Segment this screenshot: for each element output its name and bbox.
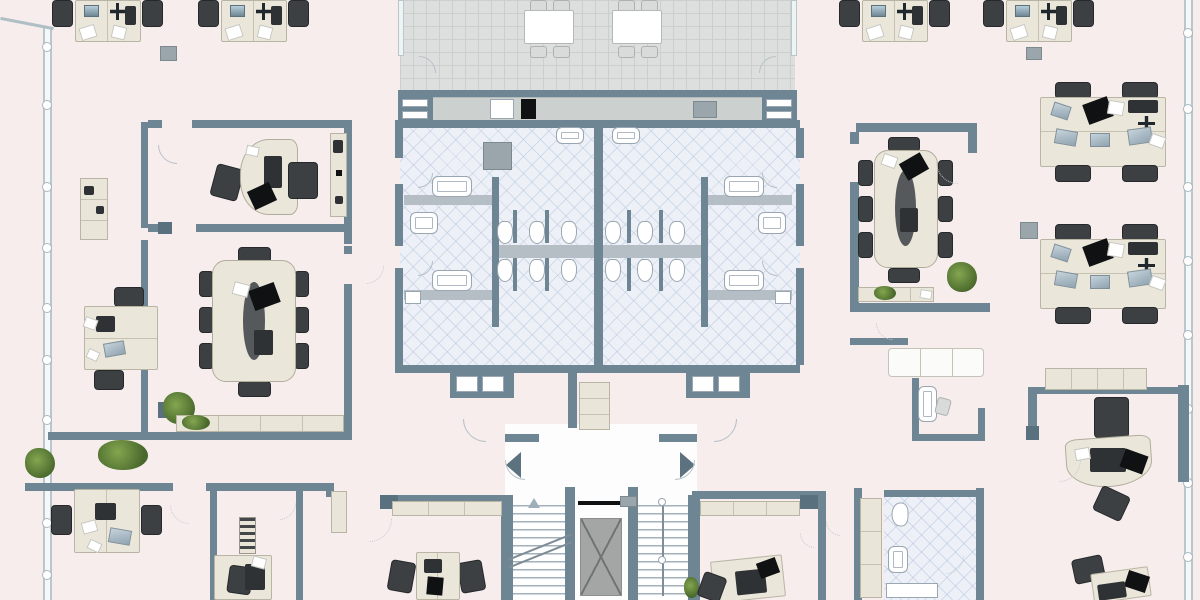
window-joint bbox=[42, 415, 52, 425]
wall bbox=[1028, 394, 1037, 428]
black-laptop bbox=[336, 170, 342, 176]
furniture-seam bbox=[260, 416, 261, 431]
black-laptop bbox=[521, 99, 536, 119]
desk-monitor bbox=[1056, 6, 1067, 25]
office-chair bbox=[294, 271, 309, 297]
stool bbox=[483, 142, 512, 170]
office-chair bbox=[888, 268, 920, 283]
service-duct bbox=[490, 99, 514, 119]
furniture-seam bbox=[920, 349, 921, 376]
wall bbox=[850, 132, 859, 144]
wall bbox=[344, 246, 352, 254]
laptop bbox=[1090, 133, 1110, 147]
break-table bbox=[612, 10, 662, 44]
sink bbox=[758, 212, 786, 234]
furniture-seam bbox=[464, 502, 465, 515]
office-floor-plan bbox=[0, 0, 1200, 600]
furniture-seam bbox=[733, 502, 734, 515]
papers bbox=[1107, 242, 1125, 259]
desk-monitor bbox=[1128, 100, 1158, 113]
toilet bbox=[637, 259, 653, 282]
window-joint bbox=[1183, 28, 1193, 38]
break-room-floor bbox=[400, 0, 795, 92]
side-chair bbox=[641, 46, 658, 58]
potted-plant bbox=[947, 262, 977, 292]
wall bbox=[796, 128, 804, 158]
sink bbox=[724, 270, 764, 291]
window-joint bbox=[1183, 182, 1193, 192]
office-chair bbox=[858, 160, 873, 186]
side-chair bbox=[553, 46, 570, 58]
service-duct bbox=[402, 111, 428, 119]
office-chair bbox=[858, 196, 873, 222]
office-chair bbox=[1055, 165, 1091, 182]
toilet bbox=[529, 259, 545, 282]
service-duct bbox=[482, 376, 504, 392]
wall bbox=[398, 90, 797, 97]
monitor bbox=[84, 5, 99, 17]
desk-monitor bbox=[1128, 242, 1158, 255]
window-joint bbox=[42, 100, 52, 110]
potted-plant bbox=[182, 415, 210, 430]
service-duct bbox=[886, 583, 938, 598]
wall bbox=[850, 303, 990, 312]
furniture-seam bbox=[85, 338, 157, 339]
toilet bbox=[605, 259, 621, 282]
office-chair bbox=[238, 381, 271, 397]
wall bbox=[513, 258, 517, 291]
desk-monitor bbox=[254, 330, 273, 355]
office-chair bbox=[294, 307, 309, 333]
wall bbox=[1178, 385, 1189, 482]
potted-plant bbox=[684, 577, 699, 598]
desk-monitor bbox=[125, 6, 136, 25]
wall bbox=[796, 184, 804, 246]
wall bbox=[196, 224, 348, 232]
wall bbox=[912, 434, 985, 441]
wall bbox=[148, 120, 162, 128]
office-chair bbox=[288, 0, 309, 27]
credenza bbox=[392, 501, 502, 516]
window-joint bbox=[1183, 256, 1193, 266]
wall bbox=[627, 210, 631, 243]
glazed-partition bbox=[398, 0, 404, 56]
wall bbox=[395, 120, 800, 128]
toilet bbox=[605, 221, 621, 244]
wall bbox=[395, 128, 403, 158]
toilet bbox=[669, 221, 685, 244]
furniture-seam bbox=[861, 564, 881, 565]
sink bbox=[556, 127, 584, 144]
wall bbox=[545, 258, 549, 291]
window-joint bbox=[1183, 330, 1193, 340]
desk-monitor bbox=[912, 6, 923, 25]
wall bbox=[48, 432, 352, 440]
furniture-seam bbox=[894, 1, 895, 41]
door-panel bbox=[158, 222, 172, 234]
office-chair bbox=[1092, 485, 1132, 523]
office-chair bbox=[1055, 307, 1091, 324]
furniture-seam bbox=[106, 490, 107, 552]
toilet bbox=[892, 503, 909, 527]
furniture-seam bbox=[766, 502, 767, 515]
credenza bbox=[860, 498, 882, 598]
office-chair bbox=[198, 0, 219, 27]
sink bbox=[612, 127, 640, 144]
window-joint bbox=[1183, 104, 1193, 114]
office-chair bbox=[1122, 307, 1158, 324]
potted-plant bbox=[98, 440, 148, 470]
wall bbox=[976, 488, 984, 600]
service-duct bbox=[766, 111, 792, 119]
furniture-seam bbox=[1123, 369, 1124, 389]
desk-monitor bbox=[271, 6, 282, 25]
service-duct bbox=[456, 376, 478, 392]
credenza bbox=[579, 382, 610, 430]
office-chair bbox=[938, 232, 953, 258]
office-chair bbox=[288, 162, 318, 199]
office-chair bbox=[938, 196, 953, 222]
stool bbox=[693, 101, 717, 118]
sink bbox=[724, 176, 764, 197]
desk-monitor bbox=[96, 206, 104, 214]
wall bbox=[513, 210, 517, 243]
wall bbox=[141, 122, 148, 228]
toilet bbox=[529, 221, 545, 244]
glazed-partition bbox=[791, 0, 797, 56]
wall bbox=[594, 128, 603, 373]
toilet bbox=[497, 221, 513, 244]
toilet bbox=[637, 221, 653, 244]
furniture-seam bbox=[81, 220, 107, 221]
wall bbox=[296, 491, 303, 600]
office-chair bbox=[839, 0, 860, 27]
sink bbox=[888, 546, 908, 573]
credenza bbox=[331, 491, 347, 533]
kitchen-counter bbox=[400, 97, 795, 121]
office-chair bbox=[983, 0, 1004, 27]
furniture-seam bbox=[861, 531, 881, 532]
wall bbox=[884, 490, 976, 497]
service-duct bbox=[775, 291, 791, 304]
plumbing-wall bbox=[602, 245, 702, 258]
office-chair bbox=[94, 370, 124, 390]
elevator-car bbox=[580, 518, 622, 596]
service-duct bbox=[405, 291, 421, 304]
side-chair bbox=[618, 46, 635, 58]
office-chair bbox=[929, 0, 950, 27]
toilet bbox=[497, 259, 513, 282]
office-chair bbox=[142, 0, 163, 27]
stool bbox=[160, 46, 177, 61]
desk-monitor bbox=[424, 559, 442, 573]
furniture-seam bbox=[1071, 369, 1072, 389]
office-chair bbox=[386, 559, 416, 594]
wall bbox=[395, 268, 403, 365]
desk-monitor bbox=[84, 186, 94, 195]
furniture-seam bbox=[253, 1, 254, 41]
window-wall bbox=[1184, 0, 1193, 600]
sink bbox=[410, 212, 438, 234]
furniture-seam bbox=[1038, 1, 1039, 41]
side-chair bbox=[934, 396, 952, 416]
black-laptop bbox=[578, 501, 622, 505]
desk-monitor bbox=[96, 316, 115, 332]
window-joint bbox=[42, 42, 52, 52]
service-duct bbox=[692, 376, 714, 392]
wall bbox=[344, 284, 352, 440]
wall bbox=[856, 123, 968, 132]
window-joint bbox=[42, 243, 52, 253]
furniture-seam bbox=[428, 502, 429, 515]
sink bbox=[432, 270, 472, 291]
plumbing-wall bbox=[494, 245, 594, 258]
furniture-seam bbox=[81, 199, 107, 200]
furniture-seam bbox=[107, 1, 108, 41]
office-chair bbox=[52, 0, 73, 27]
door-panel bbox=[1026, 426, 1039, 440]
desk-monitor bbox=[900, 208, 918, 232]
black-laptop bbox=[426, 576, 444, 595]
wall bbox=[492, 177, 499, 327]
furniture-seam bbox=[952, 349, 953, 376]
desk-monitor bbox=[333, 140, 343, 153]
shelf-unit bbox=[239, 517, 256, 554]
window-joint bbox=[1183, 552, 1193, 562]
wall bbox=[501, 495, 513, 600]
laptop bbox=[1090, 275, 1110, 289]
facade-line bbox=[0, 17, 54, 30]
furniture-seam bbox=[580, 398, 609, 399]
papers bbox=[1107, 100, 1125, 117]
toilet bbox=[669, 259, 685, 282]
window-joint bbox=[42, 570, 52, 580]
sink bbox=[918, 386, 937, 422]
door-panel bbox=[800, 495, 818, 509]
service-duct bbox=[402, 99, 428, 107]
break-table bbox=[524, 10, 574, 44]
monitor bbox=[1015, 5, 1030, 17]
toilet bbox=[561, 221, 577, 244]
wall bbox=[627, 258, 631, 291]
sink bbox=[432, 176, 472, 197]
wall bbox=[978, 408, 985, 441]
potted-plant bbox=[25, 448, 55, 478]
credenza bbox=[1045, 368, 1147, 390]
wall bbox=[568, 373, 577, 428]
stool bbox=[1020, 222, 1038, 239]
potted-plant bbox=[874, 286, 896, 300]
office-chair bbox=[114, 287, 144, 307]
office-chair bbox=[456, 559, 486, 594]
office-chair bbox=[1073, 0, 1094, 27]
furniture-seam bbox=[218, 416, 219, 431]
wall bbox=[701, 177, 708, 327]
wall bbox=[192, 120, 352, 128]
desk-monitor bbox=[335, 196, 343, 204]
monitor bbox=[871, 5, 886, 17]
papers bbox=[919, 289, 932, 300]
wall bbox=[796, 268, 804, 365]
window-joint bbox=[42, 182, 52, 192]
desk bbox=[74, 489, 140, 553]
furniture-seam bbox=[910, 288, 911, 301]
window-joint bbox=[42, 303, 52, 313]
furniture-seam bbox=[1097, 369, 1098, 389]
office-chair bbox=[1094, 397, 1129, 438]
monitor bbox=[230, 5, 245, 17]
sofa bbox=[888, 348, 984, 377]
office-chair bbox=[1122, 165, 1158, 182]
stair-break-line bbox=[662, 502, 664, 596]
office-chair bbox=[141, 505, 162, 535]
wall bbox=[545, 210, 549, 243]
stool bbox=[1026, 47, 1042, 60]
credenza bbox=[700, 501, 800, 516]
toilet bbox=[561, 259, 577, 282]
service-duct bbox=[718, 376, 740, 392]
wall bbox=[659, 210, 663, 243]
desk-monitor bbox=[1097, 581, 1127, 600]
furniture-seam bbox=[580, 414, 609, 415]
side-chair bbox=[530, 46, 547, 58]
window-joint bbox=[42, 355, 52, 365]
wall bbox=[659, 258, 663, 291]
furniture-seam bbox=[302, 416, 303, 431]
wall bbox=[395, 184, 403, 246]
stool bbox=[620, 496, 637, 507]
door-arrow bbox=[528, 498, 540, 508]
service-duct bbox=[766, 99, 792, 107]
handrail-post bbox=[658, 556, 666, 564]
desk-monitor bbox=[95, 503, 116, 520]
handrail-post bbox=[658, 498, 666, 506]
office-chair bbox=[858, 232, 873, 258]
office-chair bbox=[51, 505, 72, 535]
office-chair bbox=[294, 343, 309, 369]
